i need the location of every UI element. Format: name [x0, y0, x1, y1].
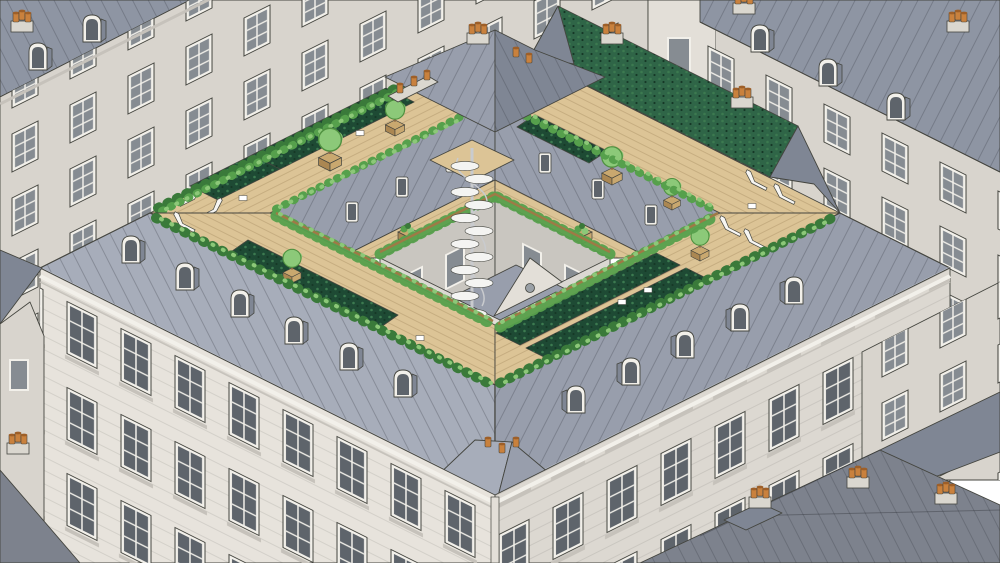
- chimney-stack: [601, 22, 623, 44]
- table-setting: [356, 131, 364, 136]
- chimney-stack: [749, 486, 771, 508]
- chimney-stack: [947, 10, 969, 32]
- stair-tread: [465, 226, 493, 235]
- skylight: [592, 179, 604, 199]
- chimney-stack: [7, 432, 29, 454]
- terracotta-pot: [485, 437, 492, 447]
- stair-tread: [465, 252, 493, 261]
- table-setting: [416, 336, 424, 341]
- stair-tread: [465, 174, 493, 183]
- illustration-canvas: [0, 0, 1000, 563]
- terracotta-pot: [513, 47, 520, 57]
- skylight: [645, 205, 657, 225]
- terracotta-pot: [499, 443, 506, 453]
- terracotta-pot: [411, 76, 418, 86]
- isometric-courtyard-scene: [0, 0, 1000, 563]
- terracotta-pot: [513, 437, 520, 447]
- table-setting: [644, 288, 652, 293]
- terracotta-pot: [424, 70, 431, 80]
- chimney-stack: [935, 482, 957, 504]
- stair-tread: [465, 200, 493, 209]
- skylight: [396, 177, 408, 197]
- terracotta-pot: [526, 53, 533, 63]
- chimney-stack: [11, 10, 33, 32]
- stair-tread: [451, 187, 479, 196]
- table-setting: [239, 196, 247, 201]
- chimney-stack: [733, 0, 755, 14]
- table-setting: [748, 204, 756, 209]
- stair-tread: [451, 213, 479, 222]
- terracotta-pot: [397, 83, 404, 93]
- stair-tread: [451, 161, 479, 170]
- skylight: [346, 202, 358, 222]
- chimney-stack: [847, 466, 869, 488]
- corner-pilaster: [491, 497, 499, 563]
- stair-tread: [465, 278, 493, 287]
- pediment-oculus: [526, 284, 535, 293]
- skylight: [539, 153, 551, 173]
- window: [10, 360, 28, 390]
- chimney-stack: [731, 86, 753, 108]
- stair-tread: [451, 291, 479, 300]
- stair-tread: [451, 265, 479, 274]
- table-setting: [618, 300, 626, 305]
- stair-tread: [451, 239, 479, 248]
- chimney-stack: [467, 22, 489, 44]
